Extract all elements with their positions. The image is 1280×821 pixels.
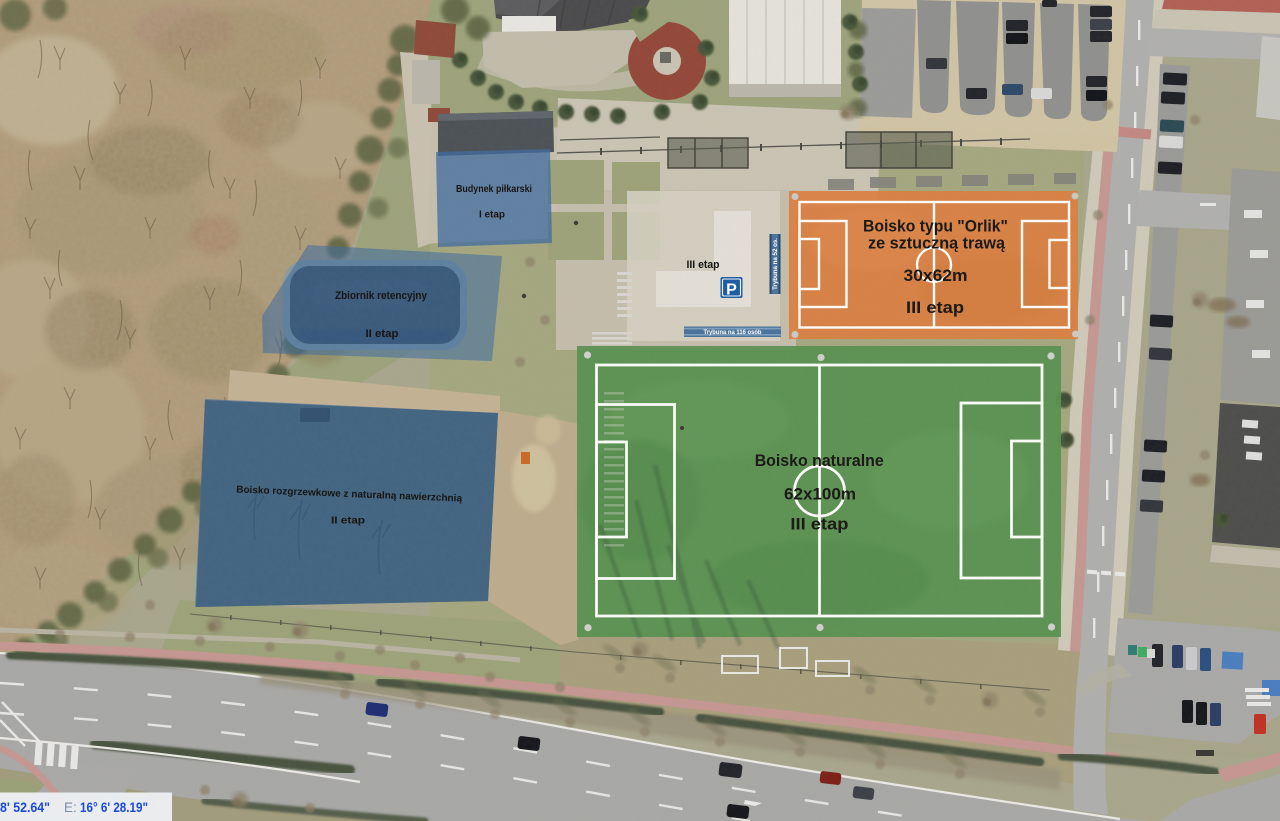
svg-text:16° 6' 28.19": 16° 6' 28.19" bbox=[80, 800, 148, 815]
svg-text:8' 52.64": 8' 52.64" bbox=[0, 800, 50, 815]
svg-text:E:: E: bbox=[64, 800, 77, 815]
